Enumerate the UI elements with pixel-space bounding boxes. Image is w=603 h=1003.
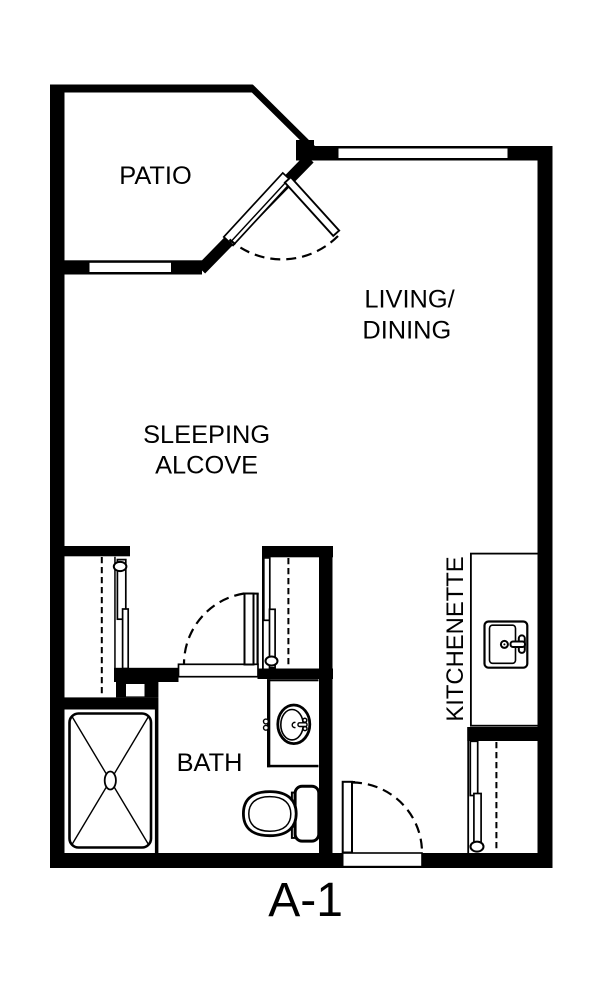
svg-text:SLEEPING: SLEEPING <box>143 421 270 449</box>
svg-text:PATIO: PATIO <box>119 162 191 190</box>
svg-text:LIVING/: LIVING/ <box>364 285 455 313</box>
svg-text:KITCHENETTE: KITCHENETTE <box>442 556 469 721</box>
svg-text:DINING: DINING <box>362 317 451 345</box>
svg-text:ALCOVE: ALCOVE <box>155 452 258 480</box>
svg-text:BATH: BATH <box>177 749 243 777</box>
svg-text:A-1: A-1 <box>268 874 343 927</box>
